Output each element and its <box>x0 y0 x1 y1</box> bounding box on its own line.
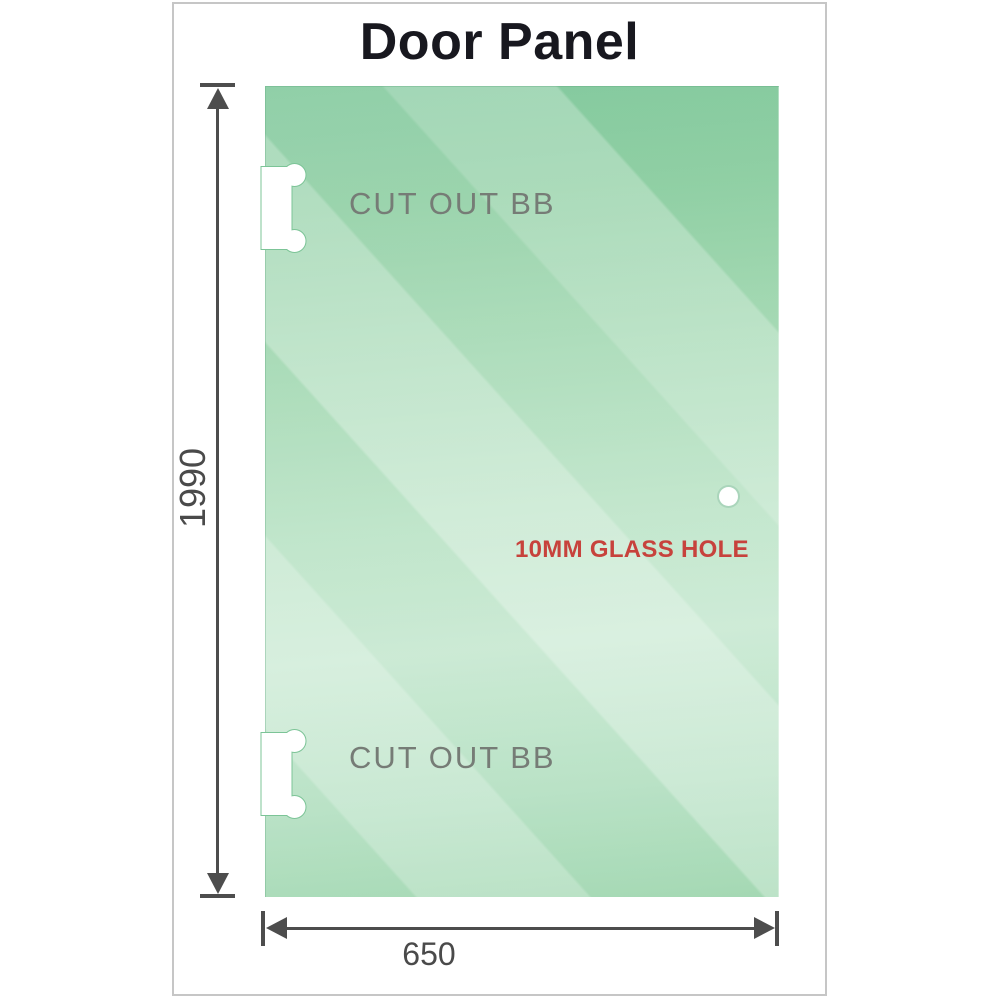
arrow-right-icon <box>754 917 775 939</box>
hinge-cutout-bottom-icon <box>260 728 308 820</box>
glass-hole-label: 10MM GLASS HOLE <box>515 536 749 564</box>
width-dim-tick-right <box>775 911 779 946</box>
hinge-cutout-fill <box>262 164 306 252</box>
arrow-down-icon <box>207 873 229 894</box>
diagram-title: Door Panel <box>172 12 827 72</box>
height-dim-value: 1990 <box>173 428 213 548</box>
width-dim-line <box>276 927 760 930</box>
glass-hole <box>717 485 740 508</box>
width-dim-tick-left <box>261 911 265 946</box>
cutout-label-top: CUT OUT BB <box>349 186 556 222</box>
cutout-label-bottom: CUT OUT BB <box>349 740 556 776</box>
hinge-cutout-fill <box>262 730 306 818</box>
glass-panel: CUT OUT BB CUT OUT BB 10MM GLASS HOLE <box>265 86 779 897</box>
hinge-cutout-top-icon <box>260 162 308 254</box>
height-dim-tick-bottom <box>200 894 235 898</box>
arrow-left-icon <box>266 917 287 939</box>
product-diagram: Door Panel <box>0 0 1000 1000</box>
arrow-up-icon <box>207 88 229 109</box>
height-dim-line <box>216 104 219 878</box>
height-dim-tick-top <box>200 83 235 87</box>
width-dim-value: 650 <box>379 936 479 973</box>
